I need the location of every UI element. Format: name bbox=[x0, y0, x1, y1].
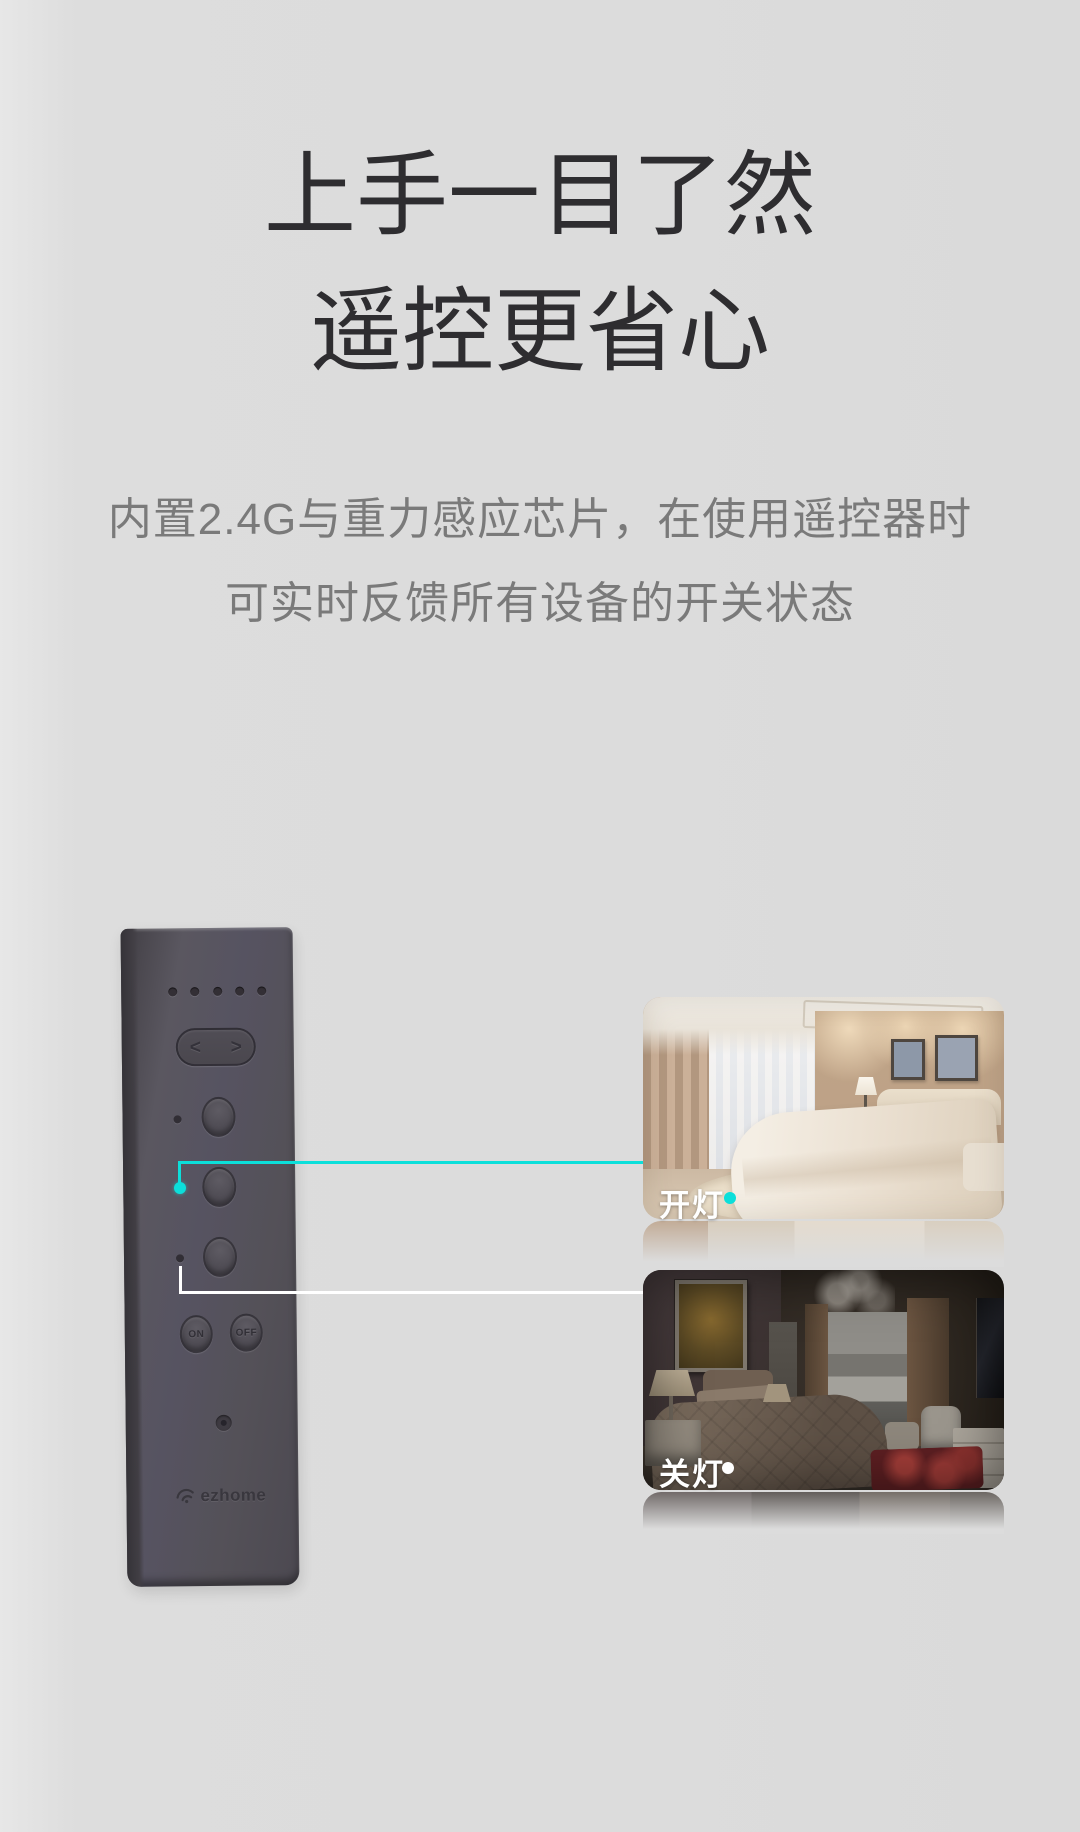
indicator-dot bbox=[190, 987, 199, 996]
signal-icon bbox=[174, 1487, 195, 1505]
pairing-led bbox=[216, 1415, 232, 1431]
status-dot-3 bbox=[176, 1254, 184, 1262]
photo-reflection bbox=[643, 1221, 1004, 1267]
scene-dot-off bbox=[722, 1462, 734, 1474]
scene-button-1 bbox=[201, 1097, 235, 1137]
remote-control: < > ON OFF ezhome bbox=[121, 927, 300, 1587]
title-line-2: 遥控更省心 bbox=[0, 264, 1080, 400]
connector-cyan-horizontal bbox=[178, 1161, 643, 1164]
subtitle-line-2: 可实时反馈所有设备的开关状态 bbox=[0, 562, 1080, 646]
title-line-1: 上手一目了然 bbox=[0, 128, 1080, 264]
connector-cyan-vertical bbox=[178, 1161, 181, 1183]
remote-side-face bbox=[121, 929, 145, 1587]
indicator-dot bbox=[235, 987, 244, 996]
chevron-right-icon: > bbox=[231, 1037, 242, 1057]
scene-label-on: 开灯 bbox=[659, 1180, 725, 1225]
on-button-label: ON bbox=[188, 1329, 204, 1340]
off-button-label: OFF bbox=[235, 1327, 257, 1338]
connector-cyan-dot bbox=[174, 1182, 186, 1194]
status-dot-1 bbox=[174, 1115, 182, 1123]
subtitle-line-1: 内置2.4G与重力感应芯片，在使用遥控器时 bbox=[0, 478, 1080, 562]
brand-name: ezhome bbox=[200, 1485, 266, 1506]
scene-button-3 bbox=[203, 1237, 237, 1277]
brand-logo: ezhome bbox=[174, 1485, 284, 1506]
scene-label-off: 关灯 bbox=[659, 1449, 725, 1494]
connector-white-vertical bbox=[179, 1266, 182, 1294]
indicator-dot-row bbox=[168, 986, 266, 996]
scene-dot-on bbox=[724, 1192, 736, 1204]
connector-white-horizontal bbox=[179, 1291, 643, 1294]
prev-next-rocker-button: < > bbox=[176, 1028, 256, 1067]
product-promo-page: 上手一目了然 遥控更省心 内置2.4G与重力感应芯片，在使用遥控器时 可实时反馈… bbox=[0, 0, 1080, 1832]
indicator-dot bbox=[168, 987, 177, 996]
subtitle: 内置2.4G与重力感应芯片，在使用遥控器时 可实时反馈所有设备的开关状态 bbox=[0, 478, 1080, 646]
chevron-left-icon: < bbox=[190, 1037, 201, 1057]
indicator-dot bbox=[213, 987, 222, 996]
indicator-dot bbox=[257, 986, 266, 995]
off-button: OFF bbox=[230, 1313, 263, 1351]
on-button: ON bbox=[180, 1315, 213, 1353]
scene-button-2 bbox=[202, 1167, 236, 1207]
photo-reflection bbox=[643, 1492, 1004, 1534]
page-title: 上手一目了然 遥控更省心 bbox=[0, 128, 1080, 400]
